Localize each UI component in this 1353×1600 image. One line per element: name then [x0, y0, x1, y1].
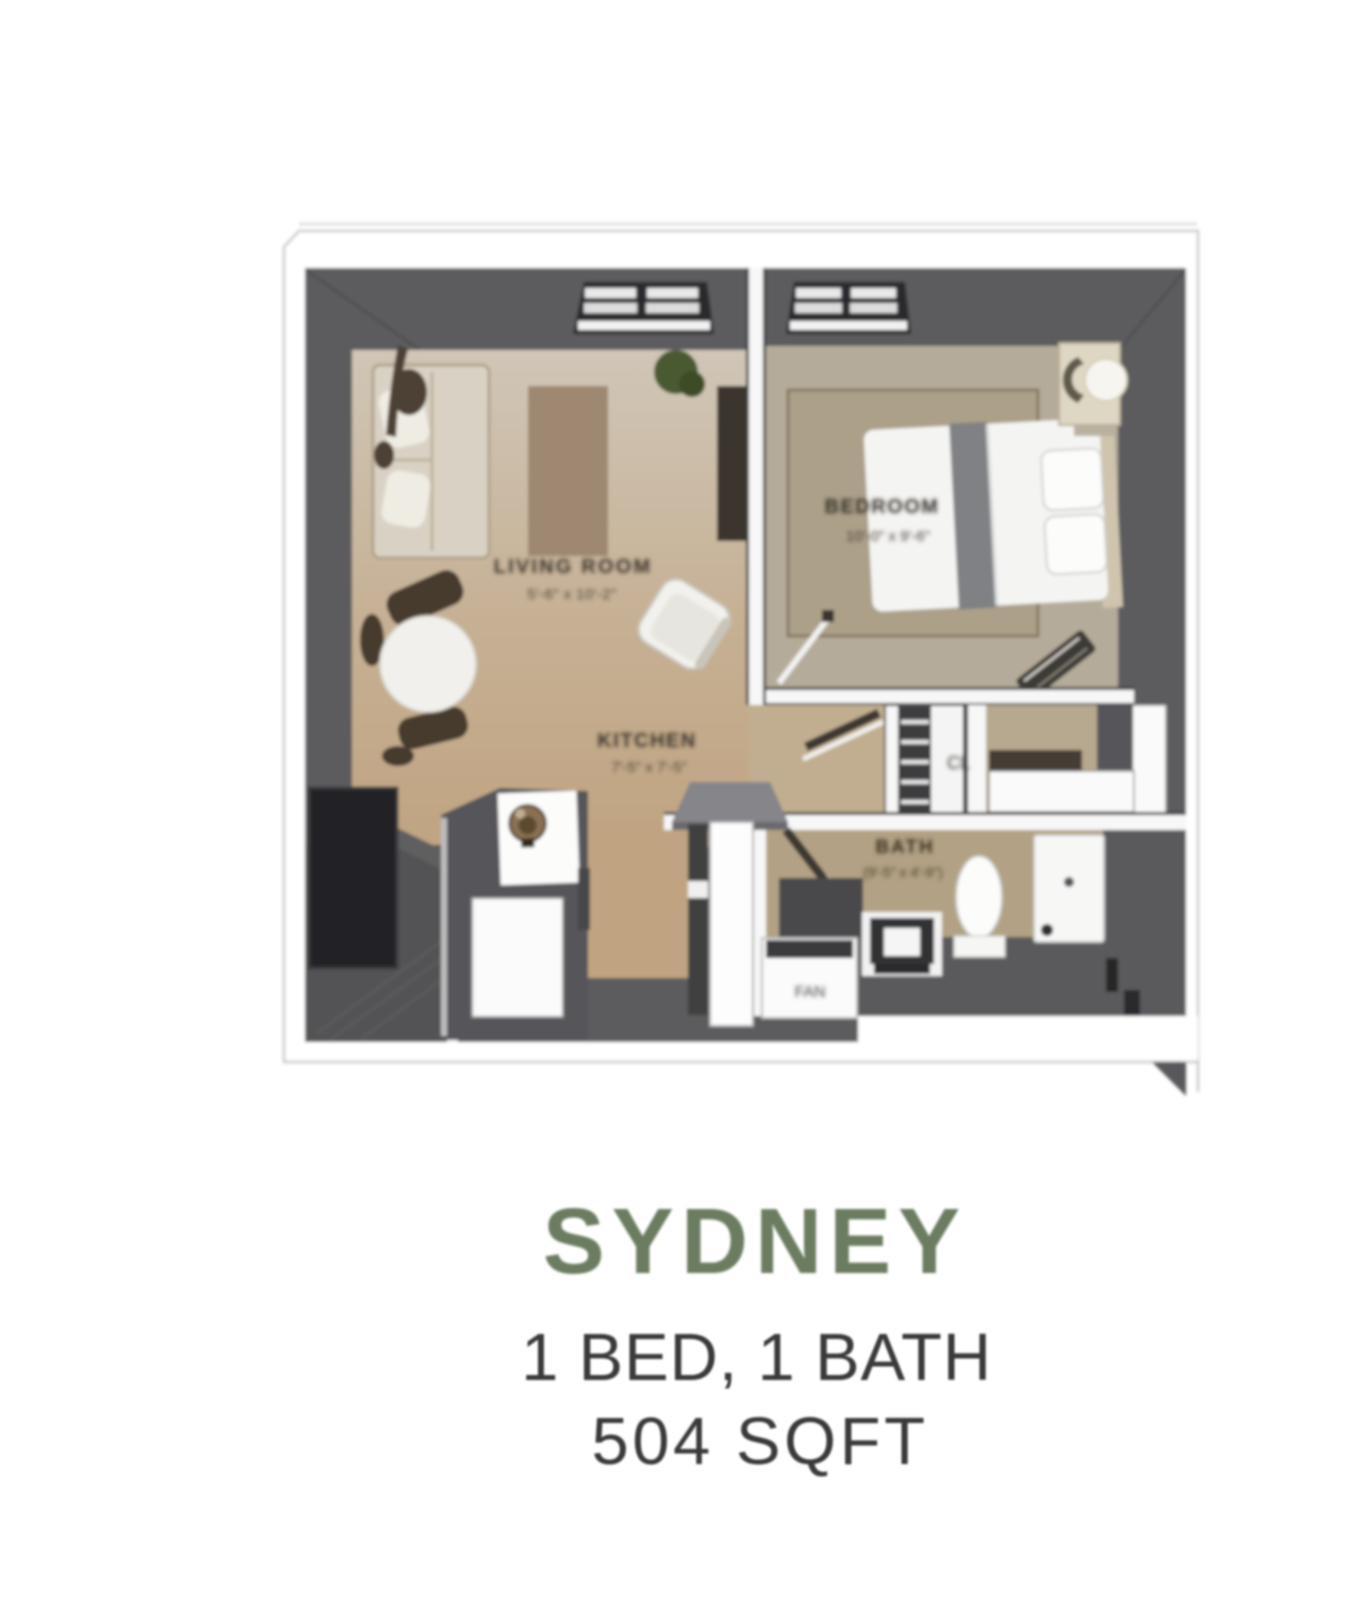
- svg-text:KITCHEN: KITCHEN: [597, 730, 696, 752]
- svg-text:BEDROOM: BEDROOM: [825, 496, 940, 518]
- svg-text:7'-5" x 7'-5": 7'-5" x 7'-5": [611, 759, 687, 776]
- svg-text:LIVING ROOM: LIVING ROOM: [494, 556, 653, 578]
- svg-text:(9'-5" x 4'-9"): (9'-5" x 4'-9"): [863, 864, 943, 880]
- svg-text:BATH: BATH: [875, 837, 934, 858]
- svg-text:5'-6" x 10'-2": 5'-6" x 10'-2": [527, 586, 617, 603]
- svg-text:FAN: FAN: [794, 984, 825, 1001]
- svg-text:10'-0" x 9'-6": 10'-0" x 9'-6": [846, 528, 930, 545]
- svg-text:CL: CL: [947, 753, 970, 773]
